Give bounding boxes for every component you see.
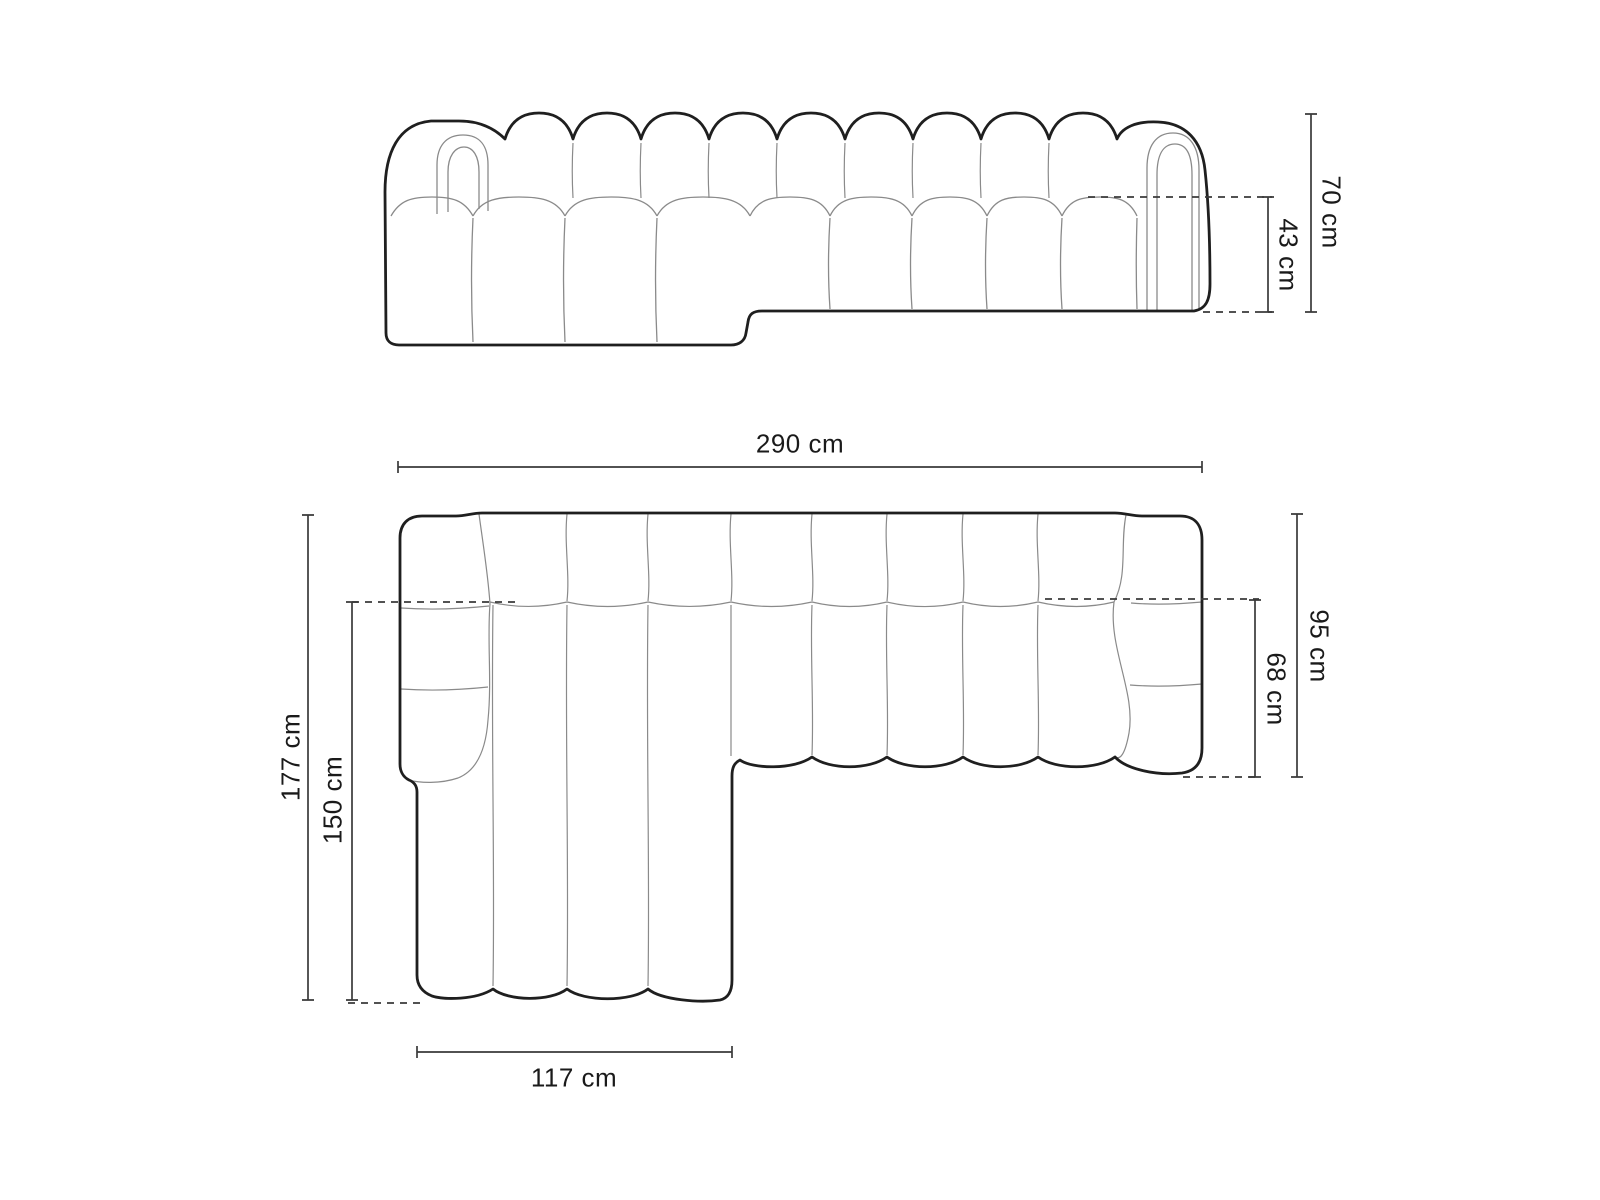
plan-total-width-label: 290 cm (756, 429, 844, 460)
plan-outer-contour (400, 513, 1202, 1001)
dimension-lines (302, 114, 1317, 1058)
plan-seat-channel-seams (492, 605, 1038, 986)
front-elevation-view (385, 113, 1210, 345)
plan-left-arm-seams (401, 604, 490, 782)
plan-chaise-width-label: 117 cm (531, 1063, 617, 1094)
plan-right-arm-seams (1113, 602, 1202, 758)
plan-chaise-inner-depth-label: 150 cm (318, 756, 349, 844)
front-outer-contour (385, 113, 1210, 345)
front-back-cushion-seams (572, 143, 1049, 198)
dim-line-95cm (1291, 514, 1303, 777)
sofa-technical-drawing (0, 0, 1600, 1200)
dimension-annotations (302, 114, 1317, 1058)
front-seat-cushion-seams (391, 197, 1137, 342)
plan-view (400, 513, 1202, 1001)
dim-line-290cm (398, 461, 1202, 473)
plan-back-cushion-seams (479, 514, 1126, 604)
dimension-diagram-canvas: 70 cm 43 cm 290 cm 95 cm 68 cm 177 cm 15… (0, 0, 1600, 1200)
front-seat-height-label: 43 cm (1273, 218, 1304, 291)
plan-seat-depth-label: 68 cm (1261, 652, 1292, 725)
front-left-arm-panel-seams (437, 135, 488, 214)
plan-seat-back-boundary (490, 602, 1114, 607)
dim-line-68cm (1249, 600, 1261, 777)
dashed-reference-lines (348, 197, 1272, 1003)
front-total-height-label: 70 cm (1316, 175, 1347, 248)
plan-total-depth-label: 95 cm (1304, 609, 1335, 682)
front-right-arm-panel-seams (1147, 133, 1199, 310)
plan-chaise-total-depth-label: 177 cm (276, 713, 307, 801)
dim-line-117cm (417, 1046, 732, 1058)
